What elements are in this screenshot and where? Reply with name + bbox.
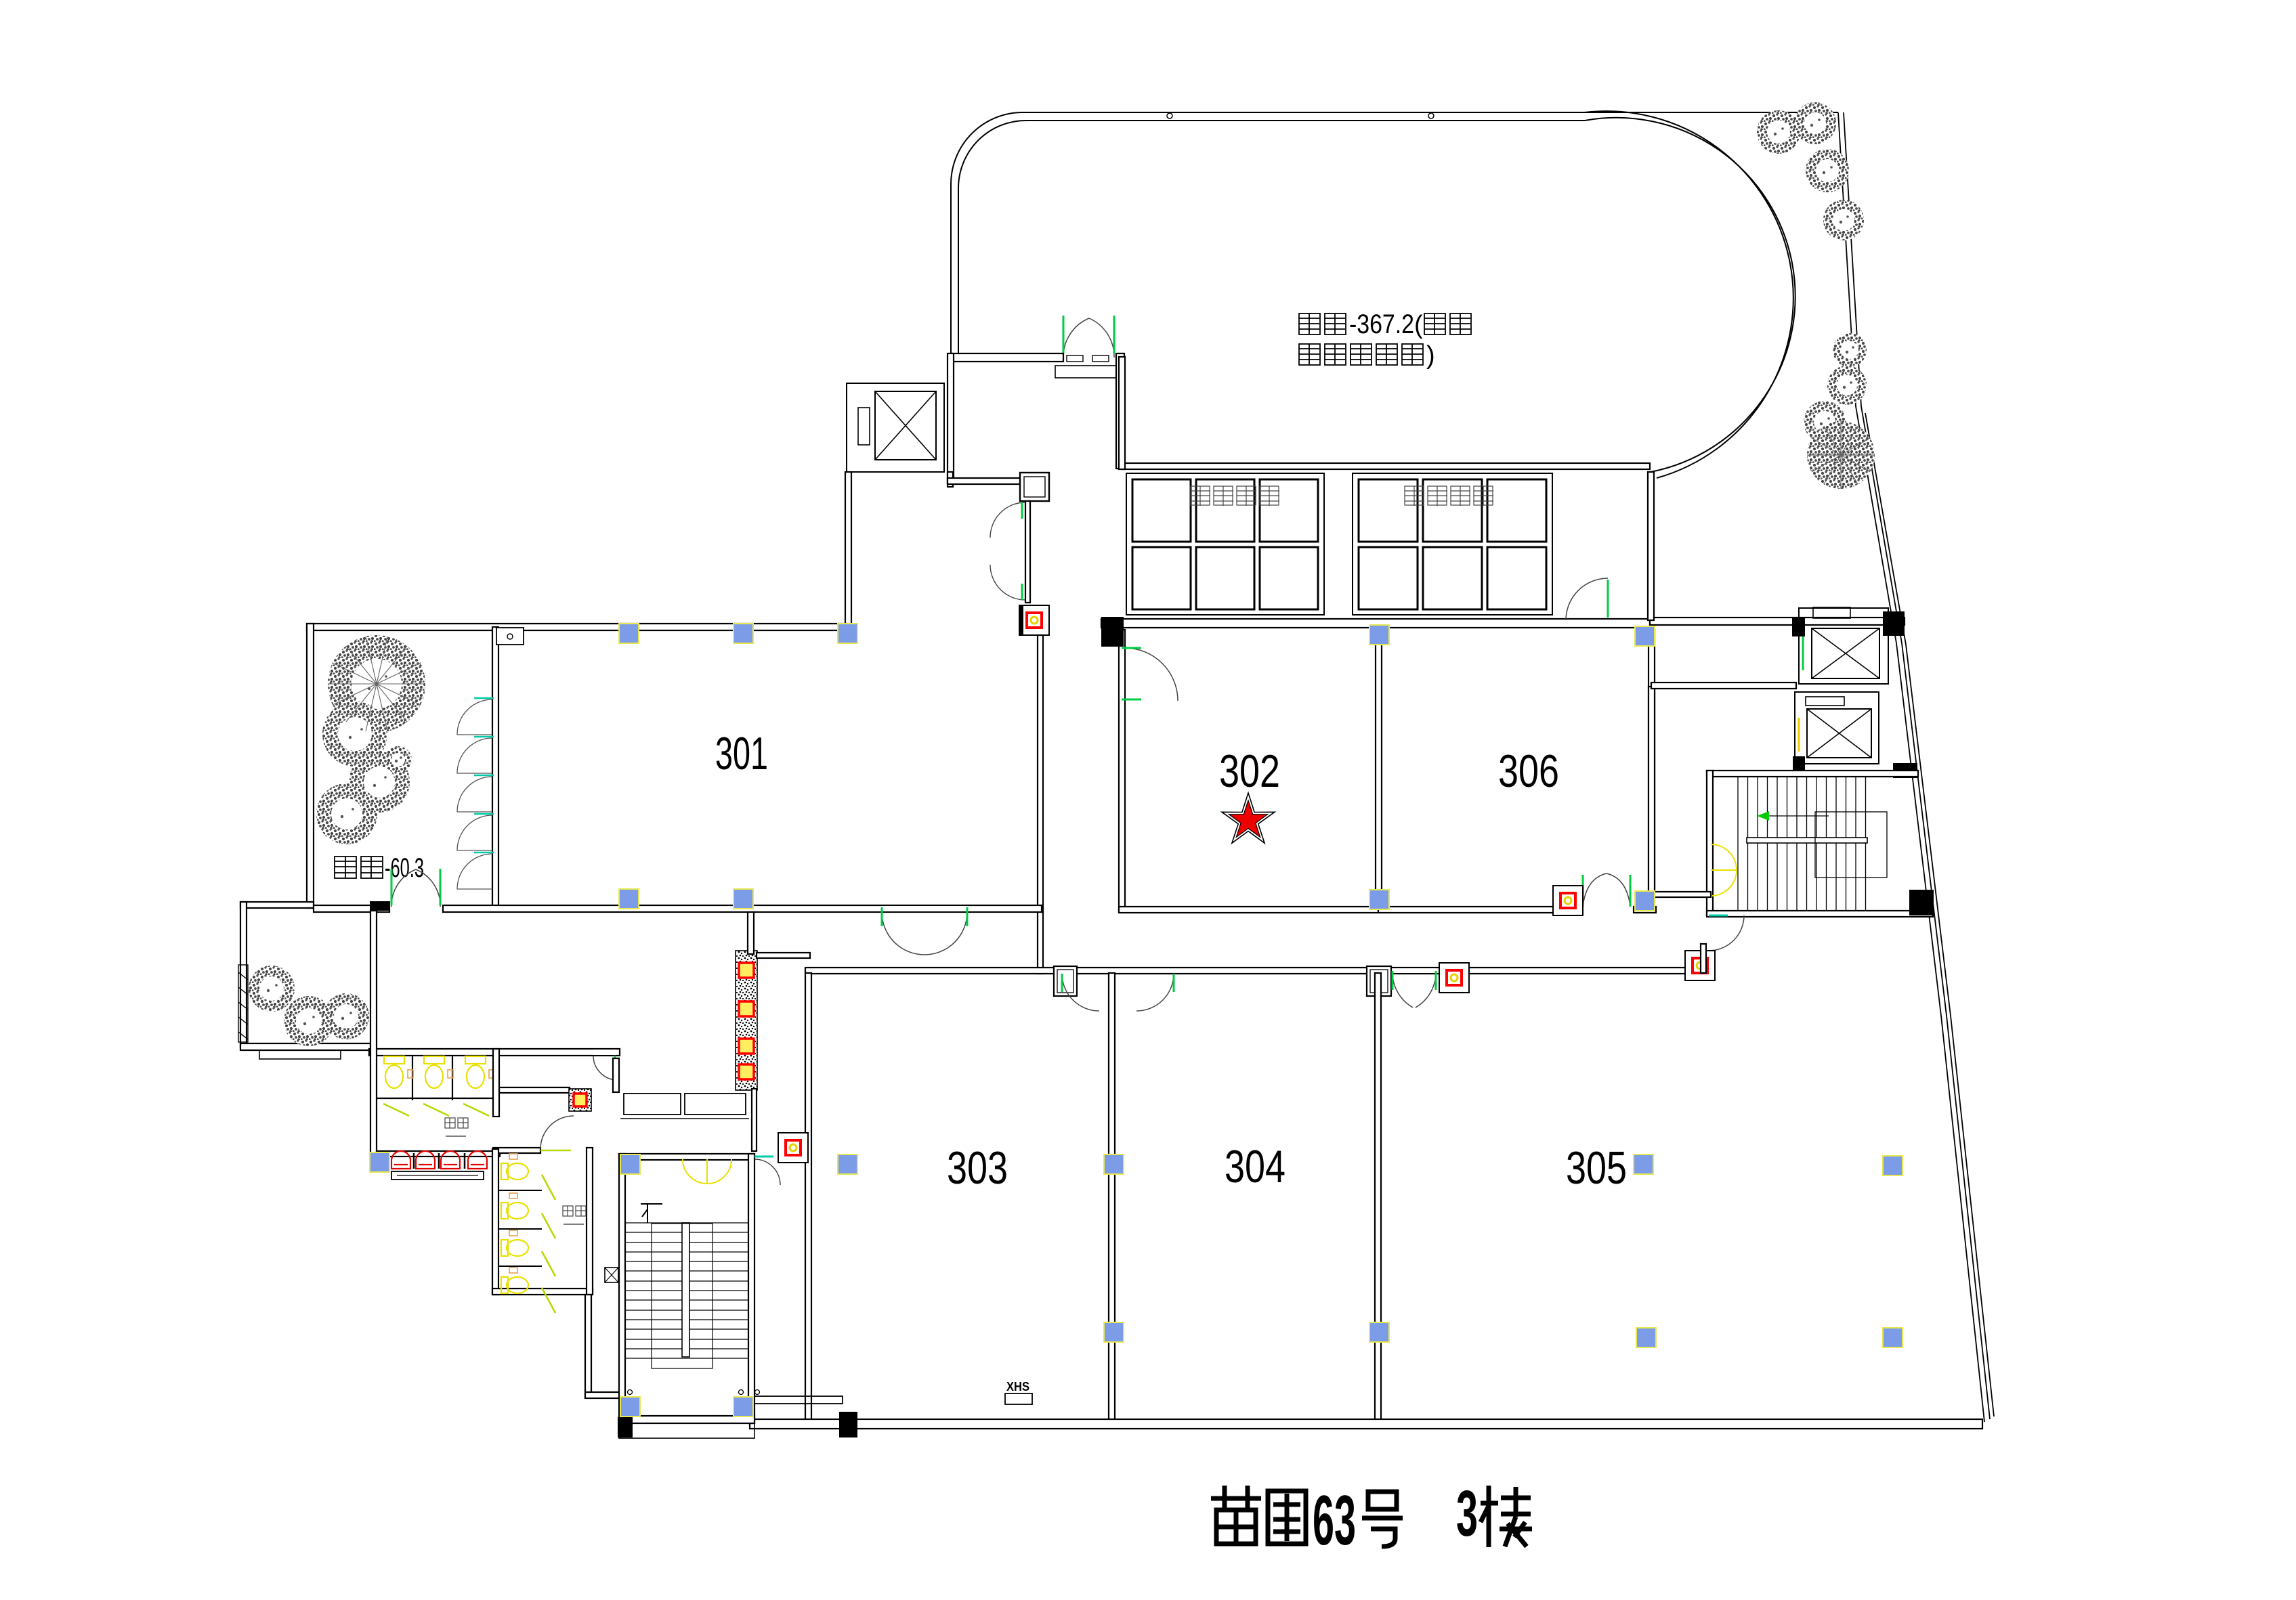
svg-text:63: 63 — [1313, 1482, 1356, 1560]
svg-text:3: 3 — [1456, 1477, 1478, 1550]
svg-text:302: 302 — [1219, 745, 1280, 797]
svg-text:-367.2: -367.2 — [1349, 309, 1414, 339]
svg-text:305: 305 — [1566, 1142, 1627, 1194]
svg-text:): ) — [1426, 341, 1435, 370]
svg-text:303: 303 — [947, 1142, 1008, 1194]
svg-text:301: 301 — [715, 728, 768, 779]
svg-text:304: 304 — [1225, 1141, 1285, 1192]
svg-text:XHS: XHS — [1006, 1380, 1029, 1393]
svg-text:(: ( — [1414, 311, 1423, 339]
svg-text:306: 306 — [1498, 745, 1559, 797]
